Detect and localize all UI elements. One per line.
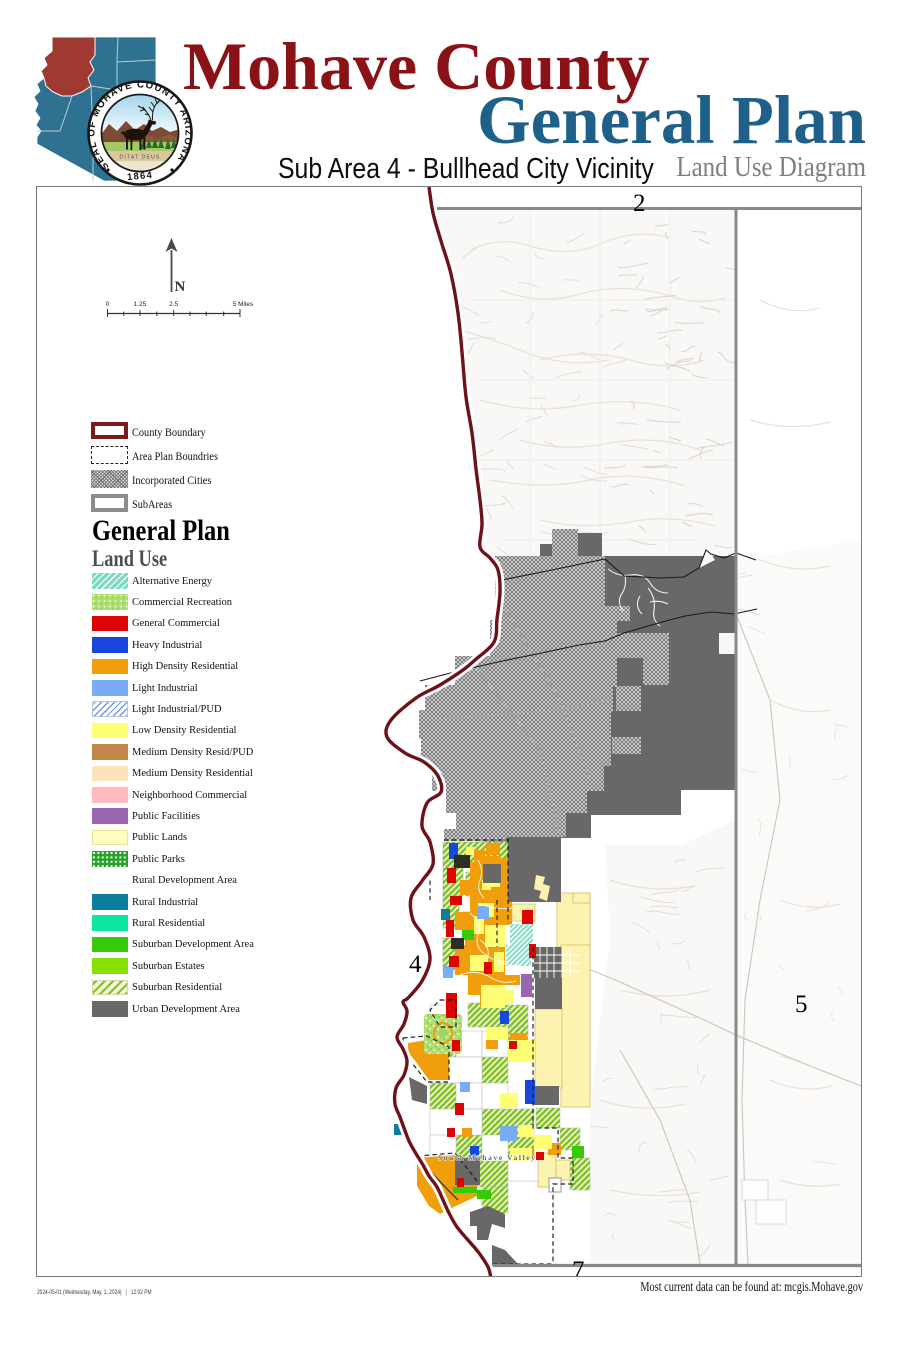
svg-text:N: N bbox=[175, 279, 186, 295]
svg-text:4: 4 bbox=[409, 951, 422, 978]
svg-text:7: 7 bbox=[572, 1257, 585, 1276]
svg-text:South Mohave Valley: South Mohave Valley bbox=[438, 1153, 535, 1162]
svg-text:2.5: 2.5 bbox=[169, 301, 178, 308]
svg-text:5 Miles: 5 Miles bbox=[233, 301, 254, 308]
svg-text:DITAT DEUS: DITAT DEUS bbox=[120, 155, 161, 161]
svg-text:0: 0 bbox=[106, 301, 110, 308]
svg-text:1864: 1864 bbox=[127, 170, 154, 183]
svg-text:2: 2 bbox=[633, 190, 646, 217]
svg-text:5: 5 bbox=[795, 991, 808, 1018]
svg-text:1.25: 1.25 bbox=[134, 301, 147, 308]
